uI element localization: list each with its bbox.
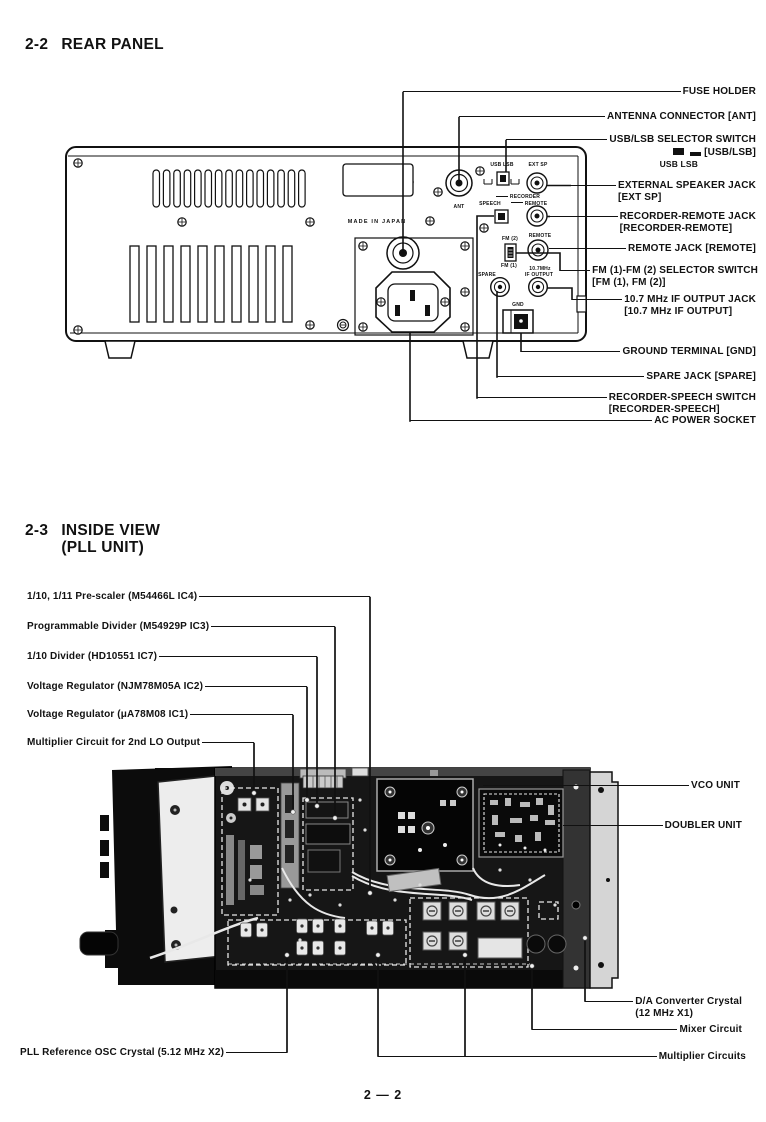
callout-antenna-connector: ANTENNA CONNECTOR [ANT] [459,111,758,123]
callout-multiplier-2nd-lo: Multiplier Circuit for 2nd LO Output [25,737,254,749]
leader-line [521,351,620,352]
leader-line [459,116,605,117]
leader-line [410,420,652,421]
usb-lsb-switch-icons: [USB/LSB] [609,147,756,159]
callout-sub: [RECORDER-SPEECH] [609,404,756,416]
panel-label-made-in-japan: MADE IN JAPAN [340,219,414,225]
section-title-line2: (PLL UNIT) [61,539,160,556]
panel-label-remote-lower: REMOTE [522,233,558,239]
callout-recorder-speech-switch: RECORDER-SPEECH SWITCH [RECORDER-SPEECH] [477,392,758,415]
page-number: 2 — 2 [0,1088,766,1102]
leader-line [548,216,618,217]
panel-label-fm1: FM (1) [493,263,525,269]
callout-da-converter-crystal: D/A Converter Crystal (12 MHz X1) [585,996,744,1019]
leader-line [585,1001,633,1002]
vco-unit-module [377,779,473,871]
leader-line [190,714,293,715]
leader-line [159,656,317,657]
callout-vco-unit: VCO UNIT [483,780,742,792]
leader-line [570,185,616,186]
section-2-2-title: 2-2 REAR PANEL [25,36,164,53]
callout-text: D/A Converter Crystal [635,996,742,1008]
callout-text: RECORDER-SPEECH SWITCH [609,392,756,404]
callout-1-10-divider: 1/10 Divider (HD10551 IC7) [25,651,317,663]
leader-line [572,299,622,300]
leader-line [532,1029,677,1030]
callout-sub: [EXT SP] [618,192,756,204]
gnd-terminal [503,310,533,333]
leader-line [202,742,254,743]
section-title-text: REAR PANEL [61,36,164,53]
leader-line [497,376,644,377]
callout-remote-jack: REMOTE JACK [REMOTE] [549,243,758,255]
leader-line [211,626,335,627]
front-knob [80,932,118,955]
section-title-text: INSIDE VIEW (PLL UNIT) [61,522,160,556]
panel-label-ant: ANT [444,204,474,210]
callout-fm-selector: FM (1)-FM (2) SELECTOR SWITCH [FM (1), F… [560,265,760,288]
leader-line [199,596,370,597]
section-number: 2-2 [25,36,48,53]
rear-panel-drawing [66,147,586,358]
section-title-line1: INSIDE VIEW [61,522,160,539]
callout-spare-jack: SPARE JACK [SPARE] [497,371,758,383]
ac-power-socket [376,272,450,332]
callout-voltage-regulator-ic1: Voltage Regulator (μA78M08 IC1) [25,709,293,721]
callout-doubler-unit: DOUBLER UNIT [563,820,744,832]
manual-page: 2-2 REAR PANEL 2-3 INSIDE VIEW (PLL UNIT… [0,0,766,1122]
callout-recorder-remote-jack: RECORDER-REMOTE JACK [RECORDER-REMOTE] [548,211,758,234]
callout-text: USB/LSB SELECTOR SWITCH [609,134,756,146]
leader-line [226,1052,287,1053]
callout-text: RECORDER-REMOTE JACK [620,211,756,223]
callout-ac-power-socket: AC POWER SOCKET [410,415,758,427]
pll-unit-photo [80,766,618,988]
leader-line [477,397,607,398]
callout-text: 10.7 MHz IF OUTPUT JACK [624,294,756,306]
panel-label-gnd: GND [504,302,532,308]
callout-voltage-regulator-ic2: Voltage Regulator (NJM78M05A IC2) [25,681,307,693]
mixer-crystal [478,938,522,958]
callout-sub: [RECORDER-REMOTE] [620,223,756,235]
switch-down-icon [690,152,701,156]
doubler-unit-module [479,789,563,857]
panel-label-spare: SPARE [470,272,504,278]
callout-multiplier-circuits: Multiplier Circuits [378,1051,748,1063]
leader-line [403,91,681,92]
switch-up-icon [673,148,684,155]
section-number: 2-3 [25,522,48,556]
leader-line [483,785,689,786]
panel-label-usb-lsb: USB LSB [480,162,524,168]
leader-line [205,686,307,687]
callout-sub: (12 MHz X1) [635,1008,742,1020]
callout-text: FM (1)-FM (2) SELECTOR SWITCH [592,265,758,277]
callout-if-output-jack: 10.7 MHz IF OUTPUT JACK [10.7 MHz IF OUT… [572,294,758,317]
section-2-3-title: 2-3 INSIDE VIEW (PLL UNIT) [25,522,160,556]
callout-pll-reference-crystal: PLL Reference OSC Crystal (5.12 MHz X2) [18,1047,287,1059]
leader-line [560,270,590,271]
side-bracket [590,772,618,988]
recorder-remote-jack [527,206,547,226]
leader-line [563,825,663,826]
callout-mixer-circuit: Mixer Circuit [532,1024,744,1036]
panel-label-speech: SPEECH [470,201,510,207]
leader-line [378,1056,657,1057]
speech-switch [495,210,508,223]
callout-text: EXTERNAL SPEAKER JACK [618,180,756,192]
callout-sub: [10.7 MHz IF OUTPUT] [624,306,756,318]
panel-label-if-output: IF OUTPUT [518,272,560,278]
panel-label-ext-sp: EXT SP [519,162,557,168]
callout-fuse-holder: FUSE HOLDER [403,86,758,98]
panel-label-remote-upper: REMOTE [516,201,556,207]
callout-ground-terminal: GROUND TERMINAL [GND] [521,346,758,358]
callout-sub: [FM (1), FM (2)] [592,277,758,289]
callout-external-speaker-jack: EXTERNAL SPEAKER JACK [EXT SP] [570,180,758,203]
fm-selector-switch [505,244,516,261]
remote-jack [528,240,548,260]
spare-jack [491,278,510,297]
callout-pre-scaler: 1/10, 1/11 Pre-scaler (M54466L IC4) [25,591,370,603]
leader-line [549,248,626,249]
callout-programmable-divider: Programmable Divider (M54929P IC3) [25,621,335,633]
if-output-jack [529,278,548,297]
switch-caption: USB LSB [609,159,756,171]
callout-bracket: [USB/LSB] [704,147,756,158]
leader-line [506,139,607,140]
ext-sp-jack [527,173,547,193]
